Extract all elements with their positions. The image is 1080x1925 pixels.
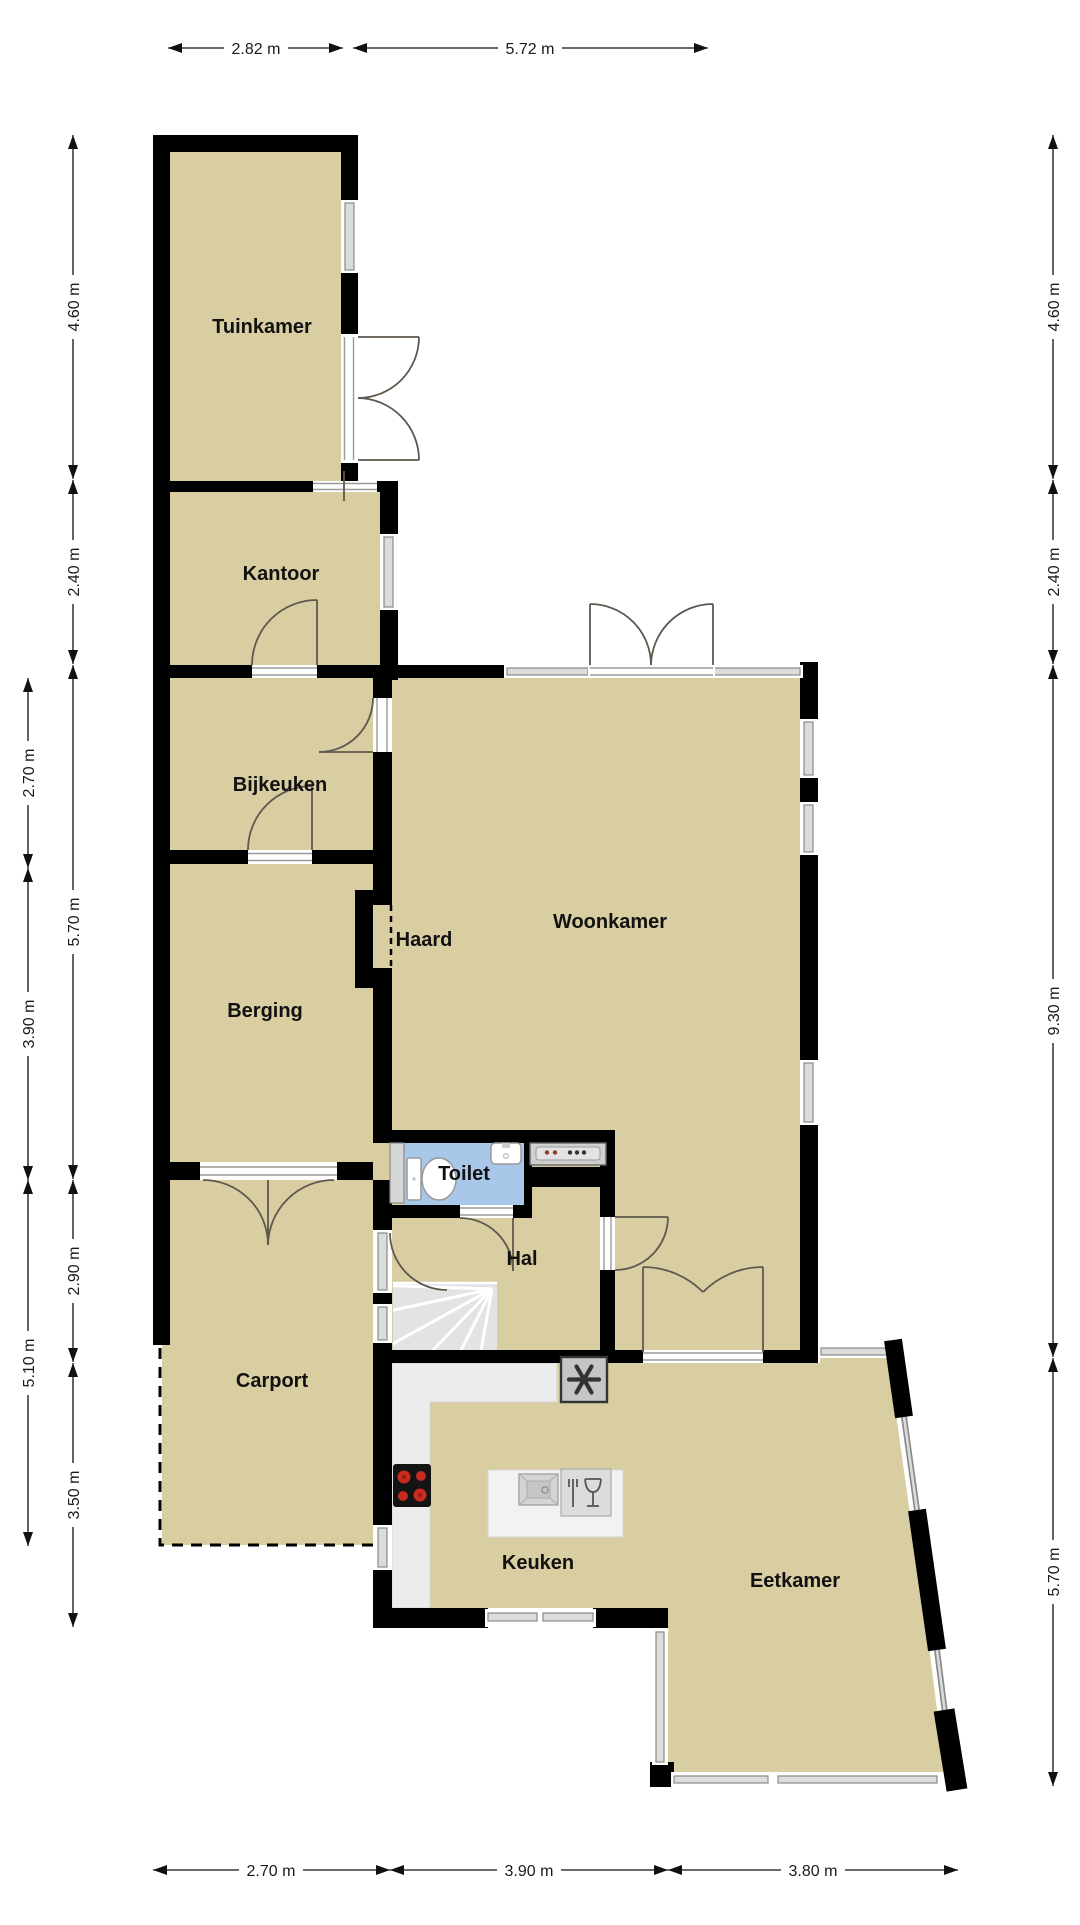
dim-top-1: 2.82 m <box>168 37 343 59</box>
label-haard: Haard <box>396 929 453 951</box>
label-carport: Carport <box>236 1370 309 1392</box>
window-eetkamer-top <box>818 1345 890 1358</box>
fireplace-niche-floor <box>373 905 392 968</box>
label-woonkamer: Woonkamer <box>553 911 667 933</box>
label-berging: Berging <box>227 1000 303 1022</box>
floor-plan: Tuinkamer Kantoor Bijkeuken Berging Haar… <box>0 0 1080 1920</box>
svg-text:5.10 m: 5.10 m <box>21 1339 38 1388</box>
svg-text:3.90 m: 3.90 m <box>505 1863 554 1880</box>
window-woonkamer-top-right <box>710 665 803 678</box>
dim-right-1: 4.60 m <box>1042 135 1064 479</box>
dim-left-outer-1: 2.70 m <box>17 678 39 868</box>
dim-left-inner-2: 2.40 m <box>62 480 84 664</box>
dim-right-4: 5.70 m <box>1042 1358 1064 1786</box>
label-kantoor: Kantoor <box>243 563 320 585</box>
svg-text:5.70 m: 5.70 m <box>66 898 83 947</box>
dim-left-outer-3: 5.10 m <box>17 1180 39 1546</box>
glazed-door-carport-hal <box>373 1230 392 1293</box>
kitchen-sink-icon <box>519 1474 558 1505</box>
dim-top-2: 5.72 m <box>353 37 708 59</box>
floor-plan-page: Tuinkamer Kantoor Bijkeuken Berging Haar… <box>0 0 1080 1920</box>
door-tuinkamer-exterior <box>341 334 419 463</box>
window-carport-hal <box>373 1304 392 1343</box>
dim-left-inner-1: 4.60 m <box>62 135 84 479</box>
dim-bottom-1: 2.70 m <box>153 1859 390 1881</box>
window-tuinkamer-right <box>341 200 358 273</box>
fork-and-glass-icon <box>561 1469 611 1516</box>
dim-left-outer-2: 3.90 m <box>17 868 39 1180</box>
svg-text:9.30 m: 9.30 m <box>1046 987 1063 1036</box>
label-bijkeuken: Bijkeuken <box>233 774 327 796</box>
window-eetkamer-left <box>652 1629 668 1765</box>
dim-bottom-2: 3.90 m <box>390 1859 668 1881</box>
window-woonkamer-right-1 <box>800 719 818 778</box>
dim-left-inner-5: 3.50 m <box>62 1363 84 1627</box>
svg-text:5.70 m: 5.70 m <box>1046 1548 1063 1597</box>
svg-text:5.72 m: 5.72 m <box>506 41 555 58</box>
svg-text:4.60 m: 4.60 m <box>1046 283 1063 332</box>
label-keuken: Keuken <box>502 1552 574 1574</box>
room-floor-keuken-eetkamer <box>392 1358 950 1772</box>
window-woonkamer-top-left <box>504 665 591 678</box>
dim-left-inner-4: 2.90 m <box>62 1180 84 1362</box>
door-woonkamer-entry <box>588 604 715 678</box>
svg-text:3.90 m: 3.90 m <box>21 1000 38 1049</box>
svg-text:2.82 m: 2.82 m <box>232 41 281 58</box>
label-eetkamer: Eetkamer <box>750 1570 840 1592</box>
cabinet-icon <box>390 1143 404 1203</box>
svg-text:2.40 m: 2.40 m <box>66 548 83 597</box>
dim-right-2: 2.40 m <box>1042 480 1064 664</box>
window-eetkamer-bottom <box>671 1772 940 1787</box>
svg-text:3.80 m: 3.80 m <box>789 1863 838 1880</box>
label-toilet: Toilet <box>438 1163 490 1185</box>
window-kantoor-right <box>380 534 398 610</box>
window-eetkamer-diagonal-2 <box>937 1650 945 1713</box>
label-tuinkamer: Tuinkamer <box>212 316 312 338</box>
window-keuken-bottom <box>485 1609 596 1627</box>
cooktop-4-burner-icon <box>393 1464 431 1507</box>
svg-text:2.40 m: 2.40 m <box>1046 548 1063 597</box>
room-floor-bijkeuken <box>167 678 392 864</box>
washbasin-icon <box>491 1143 521 1164</box>
svg-text:2.90 m: 2.90 m <box>66 1247 83 1296</box>
window-woonkamer-right-3 <box>800 1060 818 1125</box>
svg-text:4.60 m: 4.60 m <box>66 283 83 332</box>
label-hal: Hal <box>506 1248 537 1270</box>
window-keuken-left <box>373 1525 392 1570</box>
dim-left-inner-3: 5.70 m <box>62 665 84 1179</box>
appliance-counter-icon <box>530 1143 606 1165</box>
svg-text:3.50 m: 3.50 m <box>66 1471 83 1520</box>
svg-text:2.70 m: 2.70 m <box>21 749 38 798</box>
dim-right-3: 9.30 m <box>1042 665 1064 1357</box>
dim-bottom-3: 3.80 m <box>668 1859 958 1881</box>
svg-text:2.70 m: 2.70 m <box>247 1863 296 1880</box>
window-woonkamer-right-2 <box>800 802 818 855</box>
fan-asterisk-icon <box>561 1357 607 1402</box>
